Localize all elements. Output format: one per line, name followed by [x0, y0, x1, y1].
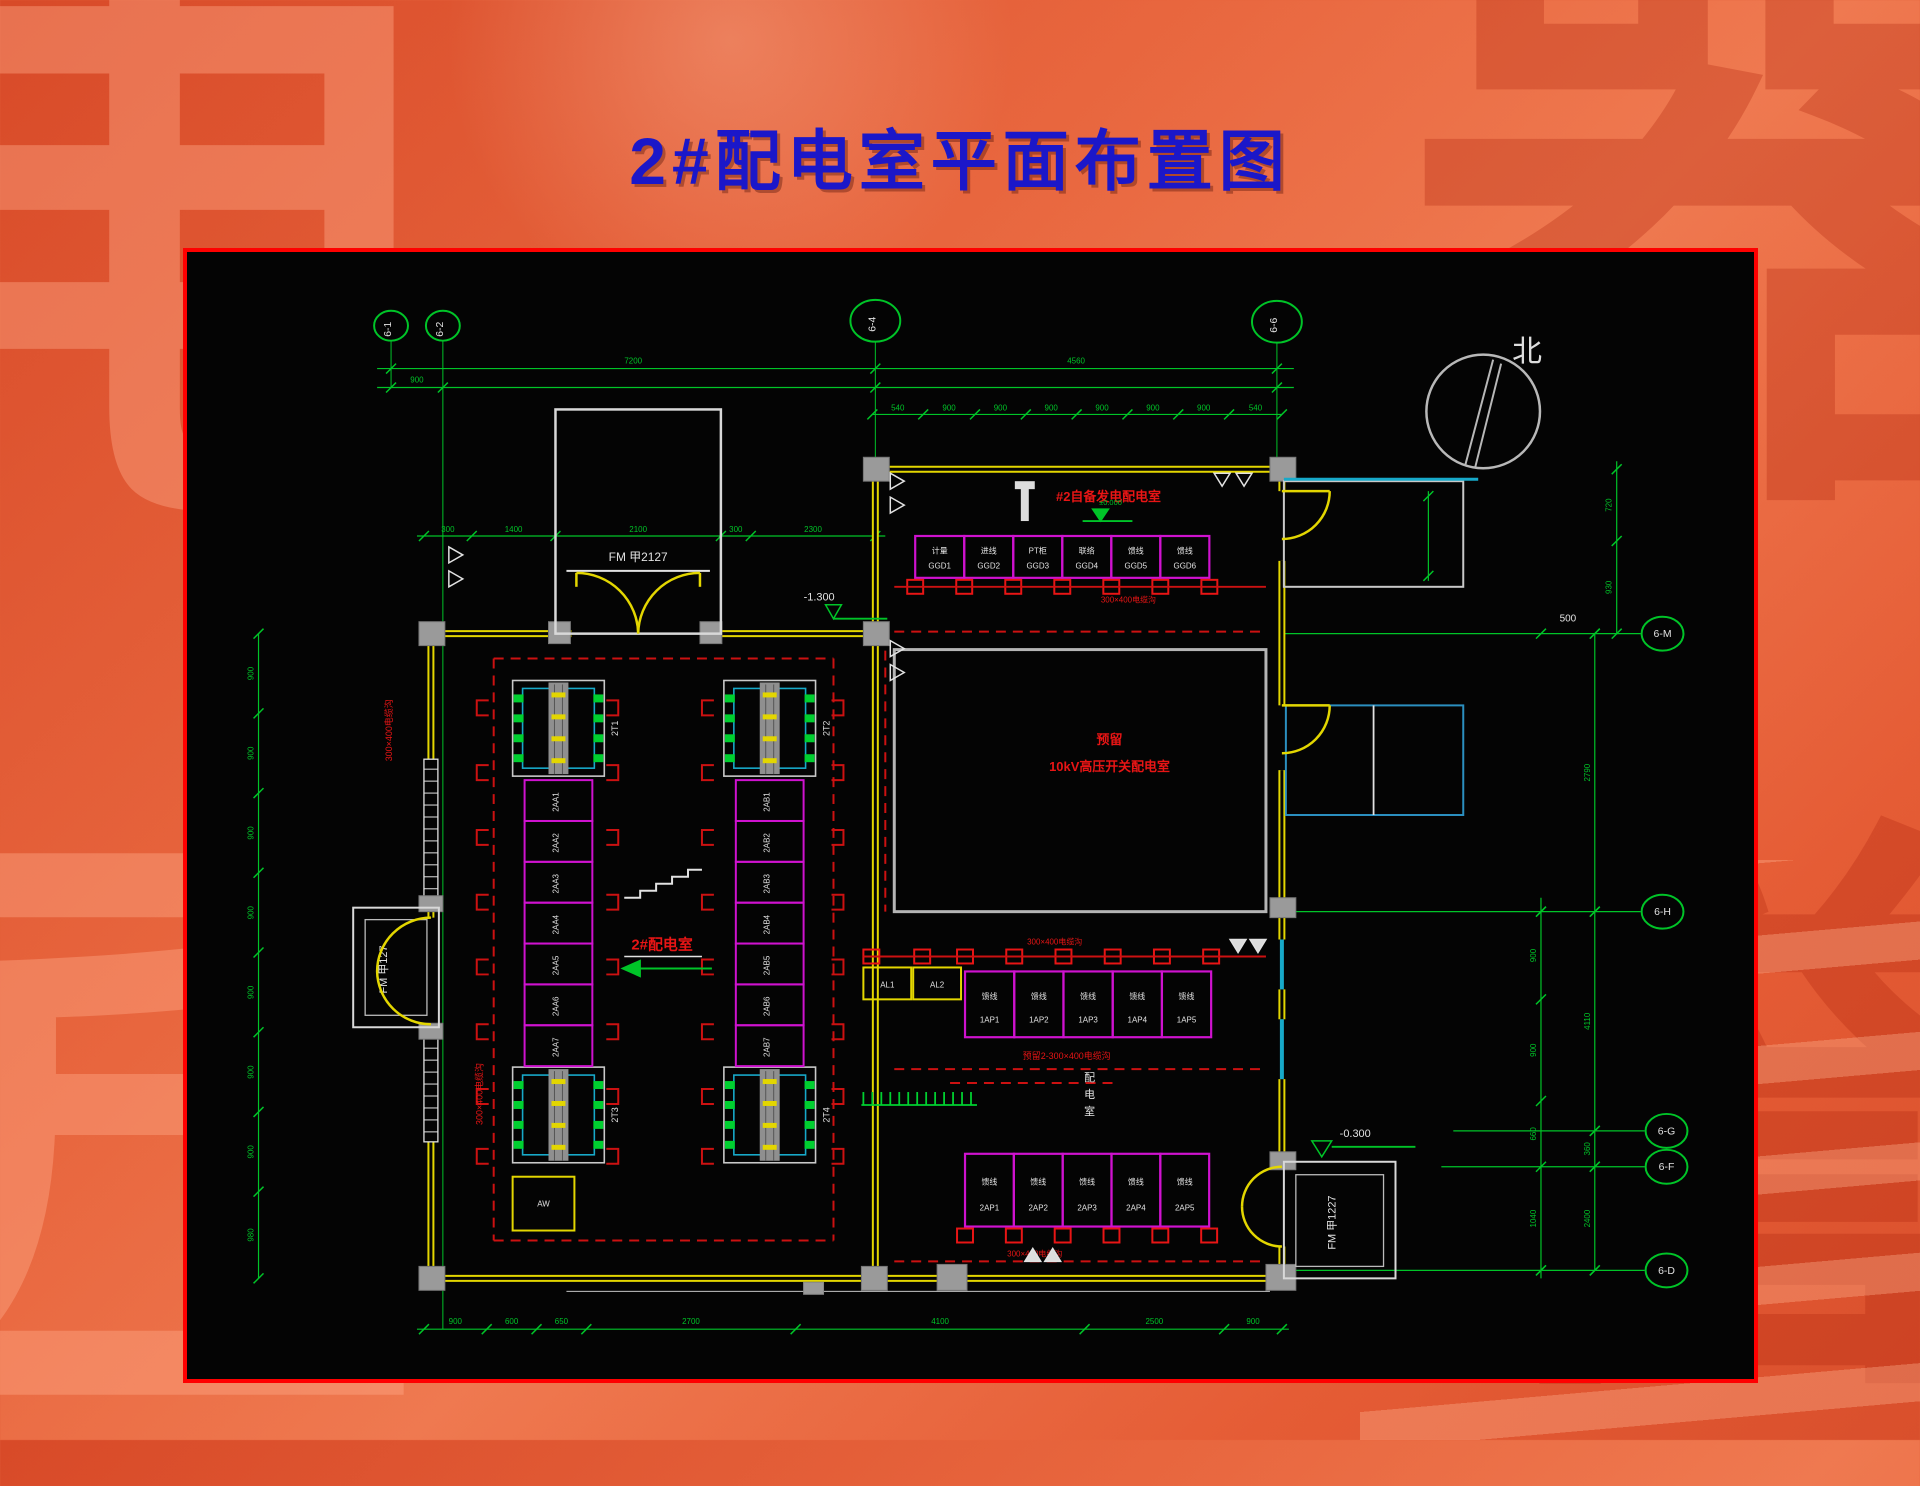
switchgear-label: 2AB3	[763, 873, 772, 893]
dimension-value: 980	[247, 1228, 256, 1242]
dimension-value: 2700	[682, 1317, 700, 1326]
panel-cell	[1160, 536, 1209, 578]
panel-label-2: 1AP2	[1029, 1016, 1049, 1025]
elevation-triangle	[1312, 1141, 1332, 1157]
column-block	[1270, 898, 1296, 918]
trench-label: 300×400电缆沟	[1101, 595, 1156, 605]
door-label-top: FM 甲2127	[609, 550, 668, 564]
switchgear-label: 2AB6	[763, 996, 772, 1016]
elevation-value: -1.300	[804, 592, 835, 604]
column-block	[937, 1264, 967, 1290]
dimension-value: 900	[1146, 403, 1160, 412]
transformer-fin	[725, 1101, 735, 1109]
trench-clip	[606, 895, 618, 910]
trench-clip	[477, 700, 489, 715]
dimension-value: 2500	[1145, 1317, 1163, 1326]
dimension-value: 900	[1095, 403, 1109, 412]
column-block	[861, 1266, 887, 1290]
dimension-value: 930	[1605, 580, 1614, 594]
trench-clip	[606, 765, 618, 780]
room-label-vertical: 电	[1084, 1088, 1095, 1101]
aux-box-label: AW	[537, 1200, 550, 1209]
dimension-value: 540	[891, 403, 905, 412]
dimension-value: 900	[449, 1317, 463, 1326]
switchgear-label: 2AA6	[551, 996, 560, 1016]
panel-label-1: 馈线	[1030, 1176, 1046, 1186]
transformer-fin	[805, 714, 815, 722]
section-flag	[890, 473, 904, 489]
dimension-value: 4100	[931, 1317, 949, 1326]
compass-north-label: 北	[1512, 336, 1542, 369]
section-flag	[1250, 940, 1266, 953]
column-block	[1270, 457, 1296, 481]
panel-cell	[1063, 971, 1112, 1037]
grid-bubble-label: 6-4	[867, 317, 878, 332]
panel-label-2: 2AP1	[980, 1204, 1000, 1213]
dimension-value: 1040	[1529, 1209, 1538, 1227]
dimension-value: 900	[1246, 1317, 1260, 1326]
trench-label: 300×400电缆沟	[474, 1063, 485, 1125]
transformer-tag: 2T4	[822, 1107, 832, 1122]
vestibule-left-inner	[365, 920, 427, 1016]
transformer-tap	[551, 1079, 565, 1084]
transformer-tap	[763, 714, 777, 719]
transformer-fin	[593, 694, 603, 702]
panel-cell	[1160, 1154, 1209, 1227]
transformer-tap	[551, 1101, 565, 1106]
trench-clip	[477, 959, 489, 974]
cad-floorplan-svg: 6-16-26-46-66-M6-H6-G6-F6-D5007200456090…	[187, 252, 1754, 1379]
elevation-triangle	[826, 605, 842, 619]
panel-label-2: GGD5	[1125, 562, 1148, 571]
transformer-fin	[593, 734, 603, 742]
dimension-value: 900	[247, 985, 256, 999]
panel-label-1: 馈线	[982, 991, 998, 1001]
trench-clip	[606, 1024, 618, 1039]
trench-clip	[477, 895, 489, 910]
elevation-value: -0.300	[1340, 1128, 1371, 1140]
trench-clip	[606, 1149, 618, 1164]
dimension-value: 900	[247, 826, 256, 840]
panel-label-2: 1AP3	[1078, 1016, 1098, 1025]
elevation-value: ±0.000	[1099, 498, 1122, 507]
wall-block	[804, 1282, 824, 1294]
transformer-tap	[763, 758, 777, 763]
column-symbol-cap	[1015, 481, 1035, 489]
transformer-fin	[514, 694, 524, 702]
switchgear-label: 2AA7	[551, 1037, 560, 1057]
transformer-tap	[763, 1079, 777, 1084]
panel-cell	[1062, 536, 1111, 578]
dimension-value: 360	[1583, 1142, 1592, 1156]
door-swing	[1282, 705, 1330, 753]
room-label-vertical: 配	[1084, 1071, 1095, 1084]
transformer-fin	[805, 754, 815, 762]
dimension-value: 900	[410, 376, 424, 385]
transformer-fin	[593, 1121, 603, 1129]
dimension-value: 720	[1605, 498, 1614, 512]
transformer-tap	[551, 1145, 565, 1150]
column-block	[419, 622, 445, 646]
room-label-hv1: 预留	[1097, 732, 1123, 747]
trench-clip-square	[1201, 1229, 1217, 1243]
trench-clip	[702, 959, 714, 974]
dimension-value: 900	[247, 1065, 256, 1079]
section-flag	[890, 665, 904, 681]
transformer-fin	[805, 694, 815, 702]
section-flag	[449, 547, 463, 563]
trench-clip-square	[957, 1229, 973, 1243]
dimension-value: 660	[1529, 1127, 1538, 1141]
grid-bubble-label: 6-H	[1654, 907, 1671, 918]
transformer-fin	[725, 734, 735, 742]
transformer-fin	[805, 1121, 815, 1129]
panel-label-2: GGD3	[1026, 562, 1049, 571]
transformer-tap	[551, 736, 565, 741]
dimension-value: 2100	[629, 525, 647, 534]
transformer-fin	[593, 714, 603, 722]
slide-title: 2#配电室平面布置图	[0, 108, 1920, 204]
trench-clip-square	[1006, 1229, 1022, 1243]
panel-cell	[915, 536, 964, 578]
transformer-tap	[763, 692, 777, 697]
transformer-fin	[725, 714, 735, 722]
transformer-tap	[763, 1123, 777, 1128]
trench-clip	[606, 830, 618, 845]
feeder-box-label: AL2	[930, 980, 945, 989]
transformer-fin	[725, 1081, 735, 1089]
offset-dimension: 500	[1560, 614, 1577, 625]
room-label-lv: 2#配电室	[631, 936, 692, 954]
trench-label: 300×400电缆沟	[1027, 937, 1082, 947]
trench-clip	[606, 959, 618, 974]
transformer-fin	[514, 1081, 524, 1089]
grid-bubble-label: 6-1	[383, 321, 394, 336]
window-white	[424, 1038, 438, 1142]
switchgear-label: 2AB1	[763, 792, 772, 812]
panel-cell	[1162, 971, 1211, 1037]
switchgear-label: 2AA4	[551, 914, 560, 934]
panel-label-1: 馈线	[1031, 991, 1047, 1001]
transformer-fin	[514, 1121, 524, 1129]
vestibule-left	[353, 908, 439, 1028]
vestibule-top	[555, 409, 720, 633]
annex-room	[1284, 481, 1463, 587]
door-swing	[576, 573, 638, 634]
transformer-fin	[514, 734, 524, 742]
dimension-value: 2790	[1583, 763, 1592, 781]
panel-cell	[1063, 1154, 1112, 1227]
transformer-tag: 2T1	[610, 721, 620, 736]
transformer-fin	[805, 734, 815, 742]
section-flag	[449, 571, 463, 587]
cad-drawing-panel: 6-16-26-46-66-M6-H6-G6-F6-D5007200456090…	[183, 248, 1758, 1383]
dimension-value: 650	[555, 1317, 569, 1326]
transformer-fin	[514, 1101, 524, 1109]
grid-bubble-label: 6-2	[435, 321, 446, 336]
panel-label-1: 联络	[1079, 546, 1095, 556]
dimension-value: 4110	[1583, 1012, 1592, 1030]
transformer-fin	[725, 694, 735, 702]
panel-cell	[1111, 1154, 1160, 1227]
door-swing	[1242, 1167, 1282, 1207]
panel-label-2: 1AP4	[1128, 1016, 1148, 1025]
transformer-tap	[551, 758, 565, 763]
dimension-value: 540	[1249, 403, 1263, 412]
transformer-fin	[514, 1141, 524, 1149]
leader-arrow	[622, 960, 640, 976]
trench-clip-square	[1055, 1229, 1071, 1243]
dimension-value: 900	[1529, 948, 1538, 962]
dimension-value: 900	[1045, 403, 1059, 412]
panel-label-2: 2AP2	[1029, 1204, 1049, 1213]
trench-clip	[702, 830, 714, 845]
transformer-fin	[593, 1081, 603, 1089]
transformer-tag: 2T2	[822, 721, 832, 736]
panel-label-2: 1AP5	[1177, 1016, 1197, 1025]
panel-cell	[1014, 971, 1063, 1037]
dimension-value: 900	[247, 1145, 256, 1159]
transformer-tap	[763, 1145, 777, 1150]
transformer-tag: 2T3	[610, 1107, 620, 1122]
trench-clip	[702, 700, 714, 715]
transformer-fin	[805, 1081, 815, 1089]
elevation-triangle	[1093, 509, 1109, 521]
panel-cell	[1013, 536, 1062, 578]
room-label-vertical: 室	[1084, 1104, 1095, 1118]
panel-label-2: GGD1	[928, 562, 951, 571]
door-swing	[1242, 1207, 1282, 1247]
trench-clip-square	[1104, 1229, 1120, 1243]
annex-room-lower	[1286, 705, 1463, 815]
panel-label-1: 馈线	[1079, 1176, 1095, 1186]
trench-clip	[702, 1149, 714, 1164]
door-swing	[1282, 491, 1330, 539]
panel-cell	[1014, 1154, 1063, 1227]
panel-label-1: 馈线	[1128, 1176, 1144, 1186]
trench-clip	[606, 1089, 618, 1104]
panel-label-1: 馈线	[1080, 991, 1096, 1001]
section-flag	[1236, 473, 1252, 486]
panel-label-1: 馈线	[1129, 991, 1145, 1001]
panel-label-2: 2AP5	[1175, 1204, 1195, 1213]
transformer-fin	[725, 1121, 735, 1129]
column-symbol	[1021, 487, 1029, 521]
transformer-fin	[805, 1101, 815, 1109]
trench-clip	[702, 765, 714, 780]
dimension-value: 900	[247, 905, 256, 919]
transformer-fin	[725, 754, 735, 762]
column-block	[863, 622, 889, 646]
panel-cell	[965, 971, 1014, 1037]
grid-bubble-label: 6-G	[1658, 1126, 1675, 1137]
transformer-tap	[551, 1123, 565, 1128]
section-flag	[890, 497, 904, 513]
section-flag	[1230, 940, 1246, 953]
panel-cell	[1111, 536, 1160, 578]
trench-clip	[702, 895, 714, 910]
stair-symbol	[624, 870, 702, 898]
switchgear-label: 2AB2	[763, 833, 772, 853]
dimension-value: 900	[994, 403, 1008, 412]
dimension-value: 300	[729, 525, 743, 534]
panel-cell	[1113, 971, 1162, 1037]
transformer-fin	[805, 1141, 815, 1149]
transformer-fin	[593, 1101, 603, 1109]
dimension-value: 300	[441, 525, 455, 534]
panel-label-2: GGD4	[1075, 562, 1098, 571]
panel-label-1: 进线	[981, 546, 997, 556]
switchgear-label: 2AA5	[551, 955, 560, 975]
grid-bubble-label: 6-D	[1658, 1266, 1675, 1277]
dimension-value: 900	[1197, 403, 1211, 412]
panel-label-1: 馈线	[1128, 546, 1144, 556]
panel-label-1: PT柜	[1029, 546, 1047, 556]
feeder-box-label: AL1	[880, 980, 895, 989]
trench-clip	[477, 1024, 489, 1039]
column-block	[863, 457, 889, 481]
grid-bubble-label: 6-6	[1269, 318, 1280, 333]
panel-label-1: 馈线	[981, 1176, 997, 1186]
trench-label: 预留2-300×400电缆沟	[1023, 1050, 1111, 1061]
dimension-value: 7200	[624, 357, 642, 366]
transformer-tap	[763, 1101, 777, 1106]
door-label-bottom-right: FM 甲1227	[1327, 1195, 1339, 1249]
panel-label-2: 1AP1	[980, 1016, 1000, 1025]
dimension-value: 900	[247, 746, 256, 760]
compass-circle	[1426, 355, 1540, 469]
panel-label-2: 2AP3	[1077, 1204, 1097, 1213]
section-flag	[1214, 473, 1230, 486]
switchgear-label: 2AA3	[551, 873, 560, 893]
trench-clip	[702, 1089, 714, 1104]
dimension-value: 900	[942, 403, 956, 412]
switchgear-label: 2AB7	[763, 1037, 772, 1057]
transformer-tap	[551, 692, 565, 697]
trench-clip	[477, 765, 489, 780]
hv-room-wall	[894, 650, 1266, 912]
room-label-hv2: 10kV高压开关配电室	[1049, 759, 1170, 774]
grid-bubble-label: 6-F	[1659, 1162, 1675, 1173]
trench-clip	[477, 830, 489, 845]
transformer-tap	[551, 714, 565, 719]
transformer-fin	[725, 1141, 735, 1149]
column-block	[419, 1266, 445, 1290]
trench-clip	[477, 1149, 489, 1164]
panel-label-1: 计量	[932, 546, 948, 556]
panel-cell	[964, 536, 1013, 578]
dimension-value: 2400	[1583, 1209, 1592, 1227]
panel-label-1: 馈线	[1177, 546, 1193, 556]
trench-label: 300×400电缆沟	[383, 699, 394, 761]
vestibule-bottom-right	[1284, 1162, 1396, 1279]
dimension-value: 900	[1529, 1043, 1538, 1057]
panel-cell	[965, 1154, 1014, 1227]
transformer-fin	[514, 714, 524, 722]
transformer-fin	[514, 754, 524, 762]
dimension-value: 600	[505, 1317, 519, 1326]
transformer-fin	[593, 754, 603, 762]
transformer-fin	[593, 1141, 603, 1149]
door-swing	[638, 573, 700, 634]
dimension-value: 900	[247, 666, 256, 680]
dimension-value: 2300	[804, 525, 822, 534]
panel-label-2: GGD2	[977, 562, 1000, 571]
panel-label-2: 2AP4	[1126, 1204, 1146, 1213]
grid-bubble-label: 6-M	[1654, 629, 1672, 640]
trench-clip	[702, 1024, 714, 1039]
panel-label-1: 馈线	[1179, 991, 1195, 1001]
panel-label-1: 馈线	[1177, 1176, 1193, 1186]
switchgear-label: 2AA2	[551, 833, 560, 853]
panel-label-2: GGD6	[1174, 562, 1197, 571]
vestibule-br-inner	[1296, 1175, 1384, 1267]
switchgear-label: 2AB4	[763, 914, 772, 934]
trench-clip	[606, 700, 618, 715]
trench-clip-square	[1152, 1229, 1168, 1243]
switchgear-label: 2AA1	[551, 792, 560, 812]
switchgear-label: 2AB5	[763, 955, 772, 975]
transformer-tap	[763, 736, 777, 741]
dimension-value: 1400	[505, 525, 523, 534]
dimension-value: 4560	[1067, 357, 1085, 366]
